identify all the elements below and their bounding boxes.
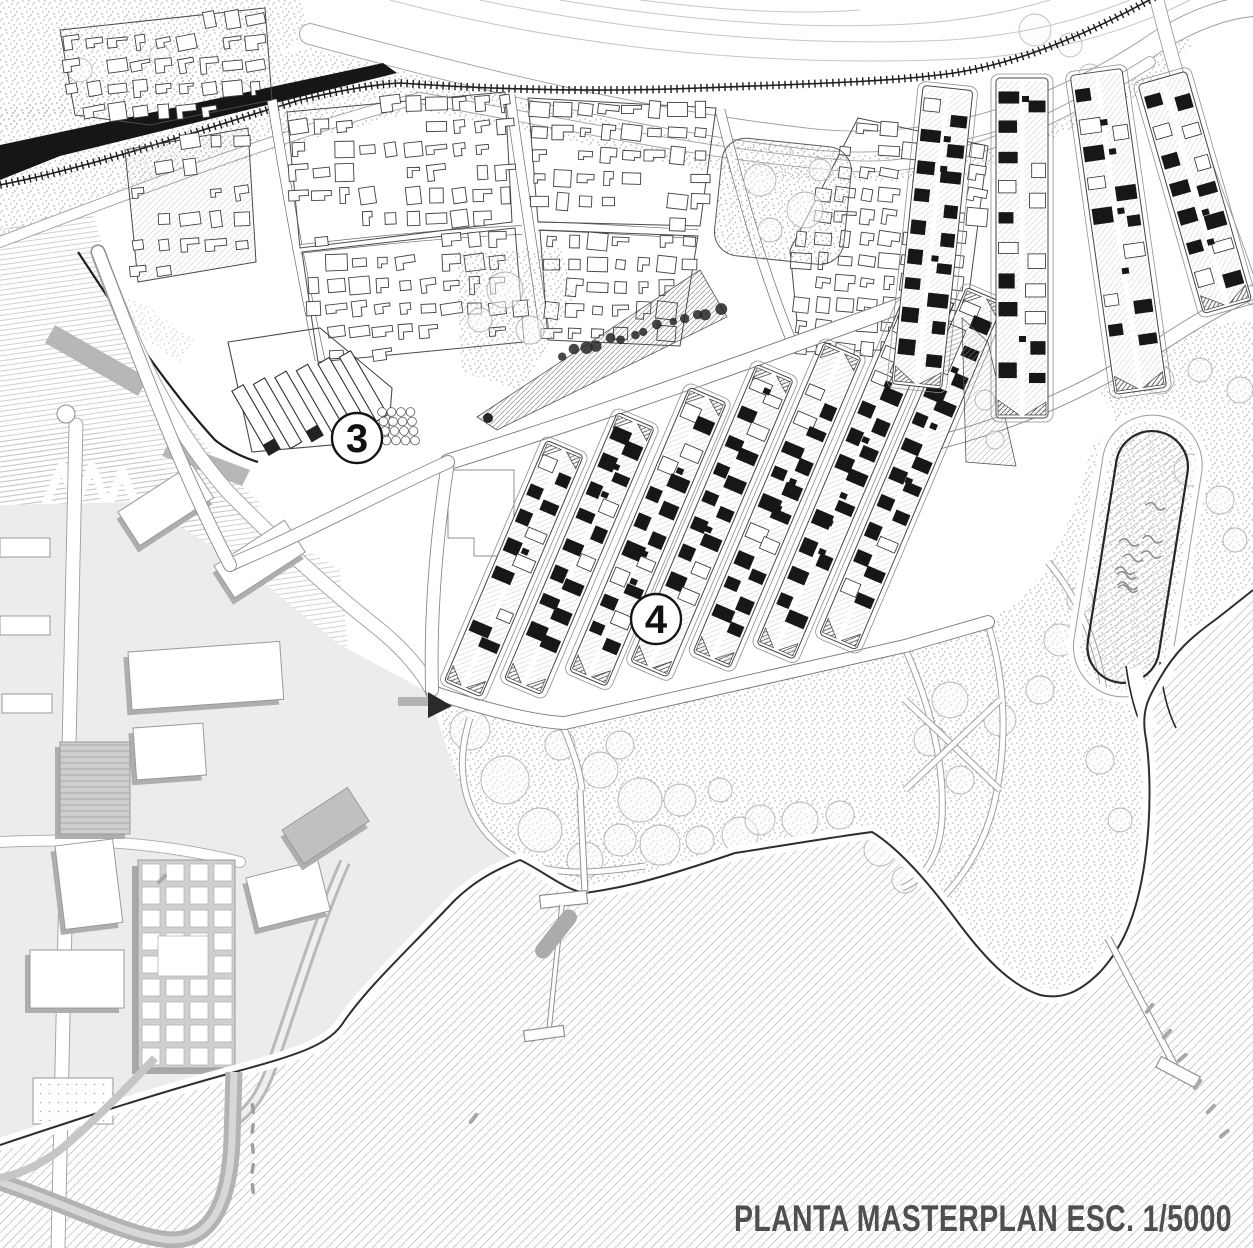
masterplan-canvas: 3 4 PLANTA MASTERPLAN ESC. 1/5000 xyxy=(0,0,1253,1248)
drawing-title: PLANTA MASTERPLAN ESC. 1/5000 xyxy=(734,1198,1232,1239)
marker-3-label: 3 xyxy=(346,417,368,461)
masterplan-drawing: 3 4 PLANTA MASTERPLAN ESC. 1/5000 xyxy=(0,0,1253,1248)
housing-strip xyxy=(991,74,1053,422)
orchard-grid xyxy=(378,408,420,445)
marker-4-label: 4 xyxy=(645,598,668,642)
plan-marker-4: 4 xyxy=(631,594,681,644)
old-town-block xyxy=(125,128,256,282)
plan-artwork xyxy=(0,0,1253,1248)
plan-marker-3: 3 xyxy=(332,413,382,463)
